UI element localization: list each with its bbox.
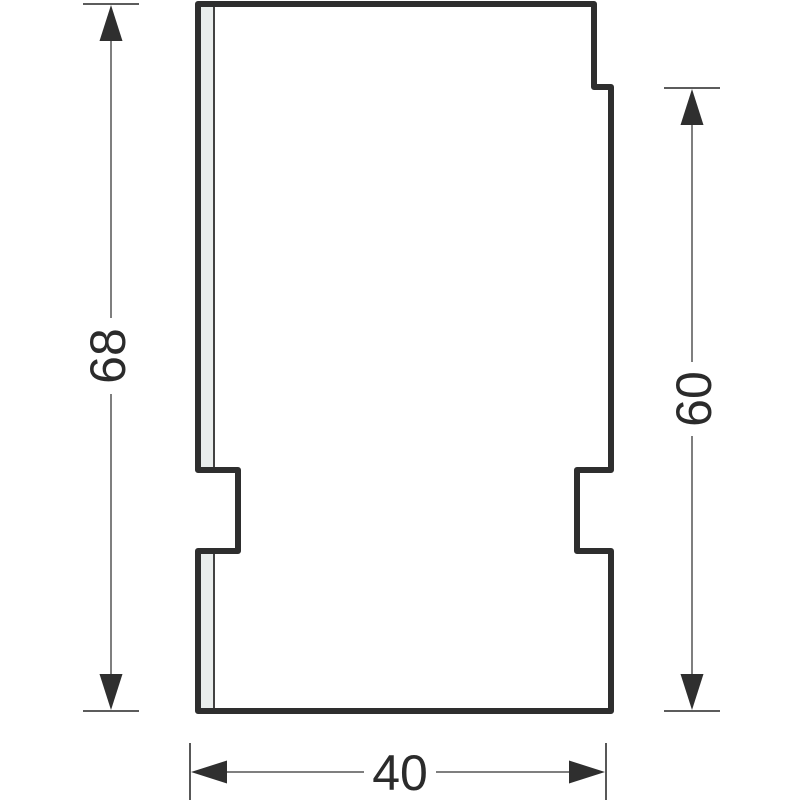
arrow-down-icon — [681, 674, 704, 710]
arrow-up-icon — [100, 5, 123, 41]
arrow-down-icon — [100, 674, 123, 710]
dimension-width: 40 — [190, 743, 606, 800]
arrow-up-icon — [681, 89, 704, 125]
dimension-total-height: 68 — [80, 4, 139, 711]
part — [198, 4, 611, 711]
edge-strip-lower — [199, 553, 213, 709]
dimension-right-height: 60 — [664, 88, 722, 711]
part-body — [198, 4, 611, 711]
arrow-right-icon — [569, 761, 605, 784]
dimension-label-right-height: 60 — [666, 371, 722, 427]
dimension-drawing-canvas: 68 60 40 — [0, 0, 800, 800]
dimension-label-total-height: 68 — [80, 328, 136, 384]
edge-strip-upper — [199, 5, 213, 468]
arrow-left-icon — [191, 761, 227, 784]
dimension-label-width: 40 — [372, 745, 428, 800]
